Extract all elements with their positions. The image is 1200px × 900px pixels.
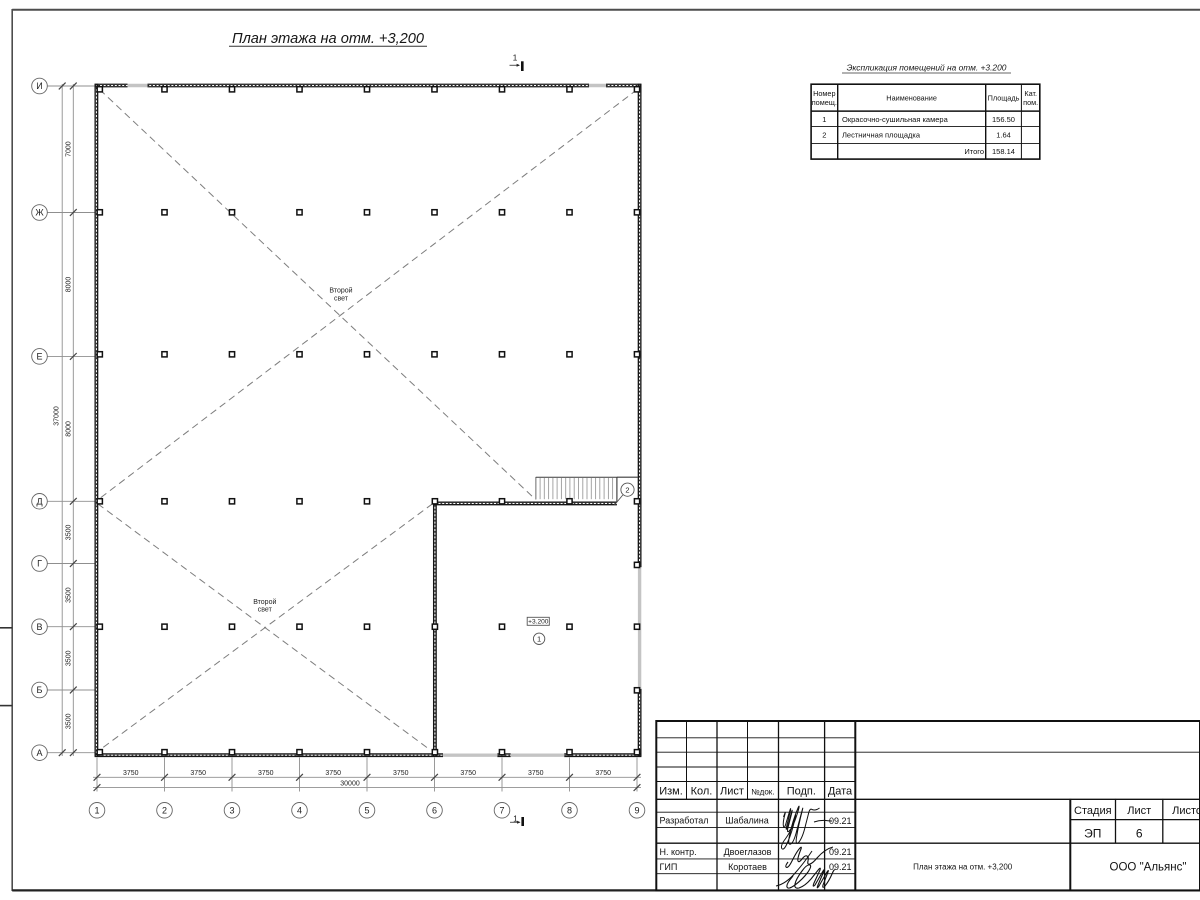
svg-text:Шабалина: Шабалина [725, 816, 768, 826]
svg-text:3750: 3750 [460, 770, 476, 777]
svg-text:свет: свет [334, 295, 349, 302]
svg-text:Наименование: Наименование [886, 93, 937, 102]
svg-text:4: 4 [297, 806, 302, 816]
svg-text:1: 1 [513, 814, 518, 824]
svg-text:09.21: 09.21 [829, 847, 852, 857]
svg-text:Ж: Ж [35, 208, 44, 218]
svg-text:3: 3 [229, 806, 234, 816]
svg-text:Кат.: Кат. [1024, 89, 1037, 98]
svg-text:ООО "Альянс": ООО "Альянс" [1110, 862, 1187, 874]
svg-text:Стадия: Стадия [1074, 805, 1112, 817]
svg-text:План этажа на отм. +3,200: План этажа на отм. +3,200 [913, 863, 1013, 872]
svg-text:3750: 3750 [190, 770, 206, 777]
svg-text:2: 2 [162, 806, 167, 816]
svg-text:ГИП: ГИП [660, 862, 678, 872]
svg-text:5: 5 [364, 806, 369, 816]
svg-text:Номер: Номер [813, 89, 835, 98]
svg-text:Экспликация помещений на отм.: Экспликация помещений на отм. +3.200 [847, 63, 1007, 73]
svg-text:Окрасочно-сушильная камера: Окрасочно-сушильная камера [842, 115, 949, 124]
svg-text:3750: 3750 [258, 770, 274, 777]
svg-text:3750: 3750 [595, 770, 611, 777]
svg-text:3500: 3500 [66, 713, 73, 729]
svg-text:Лист: Лист [720, 786, 744, 798]
svg-text:2: 2 [822, 130, 826, 139]
svg-text:3750: 3750 [528, 770, 544, 777]
svg-text:Итого: Итого [964, 147, 984, 156]
svg-text:свет: свет [258, 606, 273, 613]
svg-text:Второй: Второй [253, 598, 276, 606]
svg-text:3750: 3750 [325, 770, 341, 777]
svg-text:6: 6 [1136, 827, 1143, 841]
svg-text:1: 1 [822, 115, 826, 124]
svg-text:Лестничная площадка: Лестничная площадка [842, 130, 921, 139]
svg-text:1: 1 [513, 53, 518, 63]
svg-text:Изм.: Изм. [659, 786, 683, 798]
svg-text:Б: Б [37, 685, 43, 695]
svg-text:158.14: 158.14 [992, 147, 1015, 156]
svg-text:Второй: Второй [329, 286, 352, 294]
svg-text:09.21: 09.21 [829, 862, 852, 872]
svg-text:09.21: 09.21 [829, 816, 852, 826]
svg-text:9: 9 [634, 806, 639, 816]
svg-text:Кол.: Кол. [691, 786, 713, 798]
svg-text:+3.200: +3.200 [528, 619, 549, 626]
svg-text:Е: Е [36, 352, 42, 362]
svg-text:3750: 3750 [123, 770, 139, 777]
svg-text:Коротаев: Коротаев [728, 862, 767, 872]
svg-text:30000: 30000 [340, 780, 360, 787]
svg-text:3500: 3500 [66, 587, 73, 603]
svg-text:№док.: №док. [751, 788, 774, 797]
svg-text:3750: 3750 [393, 770, 409, 777]
svg-text:Подп.: Подп. [787, 786, 816, 798]
svg-text:А: А [36, 748, 42, 758]
svg-text:3500: 3500 [66, 650, 73, 666]
svg-text:2: 2 [625, 486, 629, 495]
svg-text:Листов: Листов [1172, 805, 1200, 817]
svg-text:1: 1 [94, 806, 99, 816]
svg-text:7: 7 [499, 806, 504, 816]
svg-text:В: В [36, 622, 42, 632]
svg-text:8000: 8000 [66, 421, 73, 437]
svg-text:3500: 3500 [66, 525, 73, 541]
svg-text:Н. контр.: Н. контр. [660, 847, 697, 857]
svg-text:1: 1 [537, 635, 541, 644]
svg-text:И: И [36, 81, 42, 91]
svg-text:7000: 7000 [66, 141, 73, 157]
svg-text:6: 6 [432, 806, 437, 816]
svg-text:Лист: Лист [1127, 805, 1151, 817]
svg-text:Д: Д [36, 497, 42, 507]
svg-text:1.64: 1.64 [996, 130, 1011, 139]
svg-text:пом.: пом. [1023, 98, 1038, 107]
svg-text:Разработал: Разработал [660, 816, 709, 826]
svg-text:37000: 37000 [54, 406, 61, 426]
svg-text:План этажа на отм. +3,200: План этажа на отм. +3,200 [232, 31, 424, 47]
svg-text:8000: 8000 [66, 277, 73, 293]
svg-text:8: 8 [567, 806, 572, 816]
svg-text:Площадь: Площадь [988, 93, 1020, 102]
svg-text:Двоеглазов: Двоеглазов [724, 847, 772, 857]
svg-text:Г: Г [37, 559, 42, 569]
svg-text:помещ.: помещ. [812, 98, 837, 107]
svg-text:ЭП: ЭП [1084, 827, 1101, 841]
svg-text:Дата: Дата [828, 786, 853, 798]
svg-text:156.50: 156.50 [992, 115, 1015, 124]
